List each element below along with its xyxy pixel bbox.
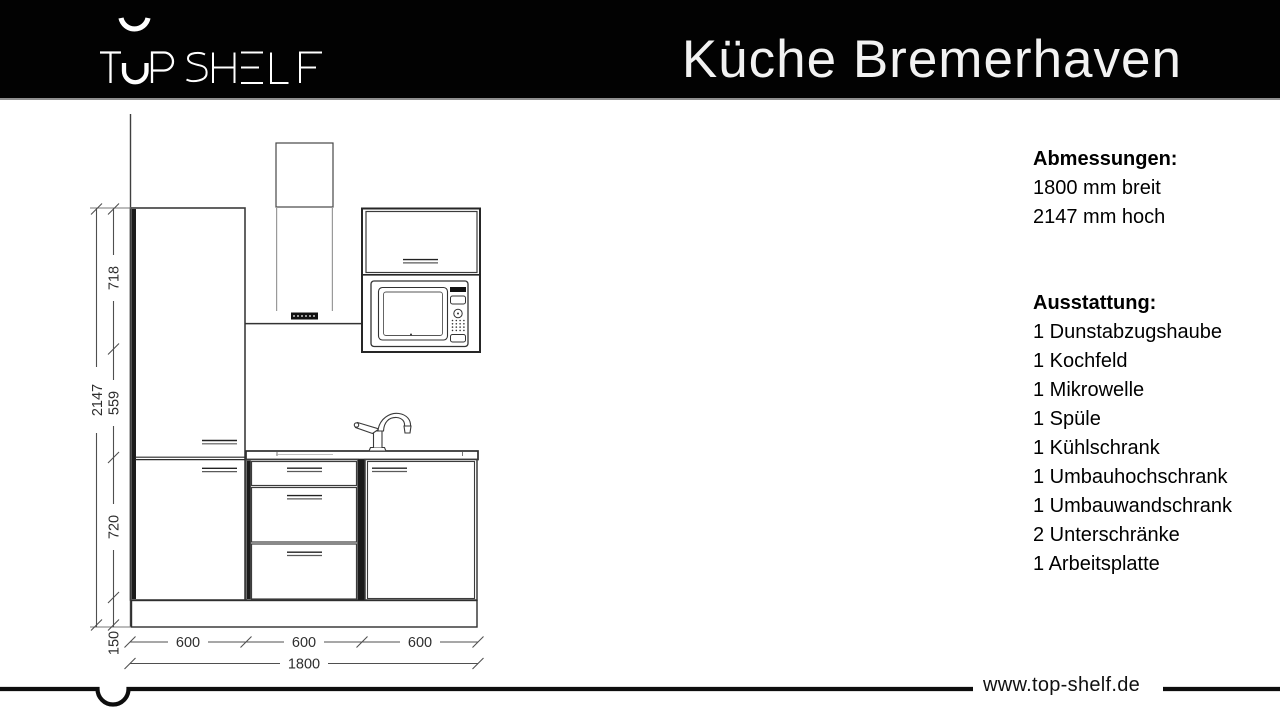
website-url: www.top-shelf.de [983,674,1140,697]
feature-item: 1 Umbauhochschrank [1033,463,1273,492]
page-title: Küche Bremerhaven [682,29,1182,90]
dimensions-block: Abmessungen: 1800 mm breit 2147 mm hoch [1033,145,1263,232]
dim-width-3: 600 [408,635,432,651]
features-block: Ausstattung: 1 Dunstabzugshaube 1 Kochfe… [1033,289,1273,579]
worktop [246,451,478,460]
dim-width-1: 600 [176,635,200,651]
dim-base-section: 720 [107,515,123,539]
tall-cabinet [131,208,246,600]
feature-item: 1 Mikrowelle [1033,376,1273,405]
dimensions-heading: Abmessungen: [1033,145,1263,174]
dim-width-2: 600 [292,635,316,651]
door-base-cabinet [365,460,477,601]
features-heading: Ausstattung: [1033,289,1273,318]
cabinet-side-panel [358,460,365,601]
feature-item: 1 Dunstabzugshaube [1033,318,1273,347]
top-shelf-logo-icon [0,0,360,100]
dim-mid-section: 559 [107,391,123,415]
feature-item: 1 Arbeitsplatte [1033,550,1273,579]
dimension-height: 2147 mm hoch [1033,203,1263,232]
microwave-wall-cabinet [362,209,480,353]
feature-item: 1 Spüle [1033,405,1273,434]
plinth [132,601,478,628]
dim-total-width: 1800 [288,657,320,673]
extractor-hood [245,143,362,324]
header-bar: TOP SHELF Küche Bremerhaven [0,0,1280,100]
dim-total-height: 2147 [90,384,106,416]
dim-wall-section: 718 [107,266,123,290]
drawer-base-cabinet [246,460,358,601]
dimension-width: 1800 mm breit [1033,174,1263,203]
feature-item: 1 Kühlschrank [1033,434,1273,463]
feature-item: 1 Kochfeld [1033,347,1273,376]
faucet [354,413,411,451]
feature-item: 1 Umbauwandschrank [1033,492,1273,521]
dim-plinth: 150 [107,631,123,655]
feature-item: 2 Unterschränke [1033,521,1273,550]
